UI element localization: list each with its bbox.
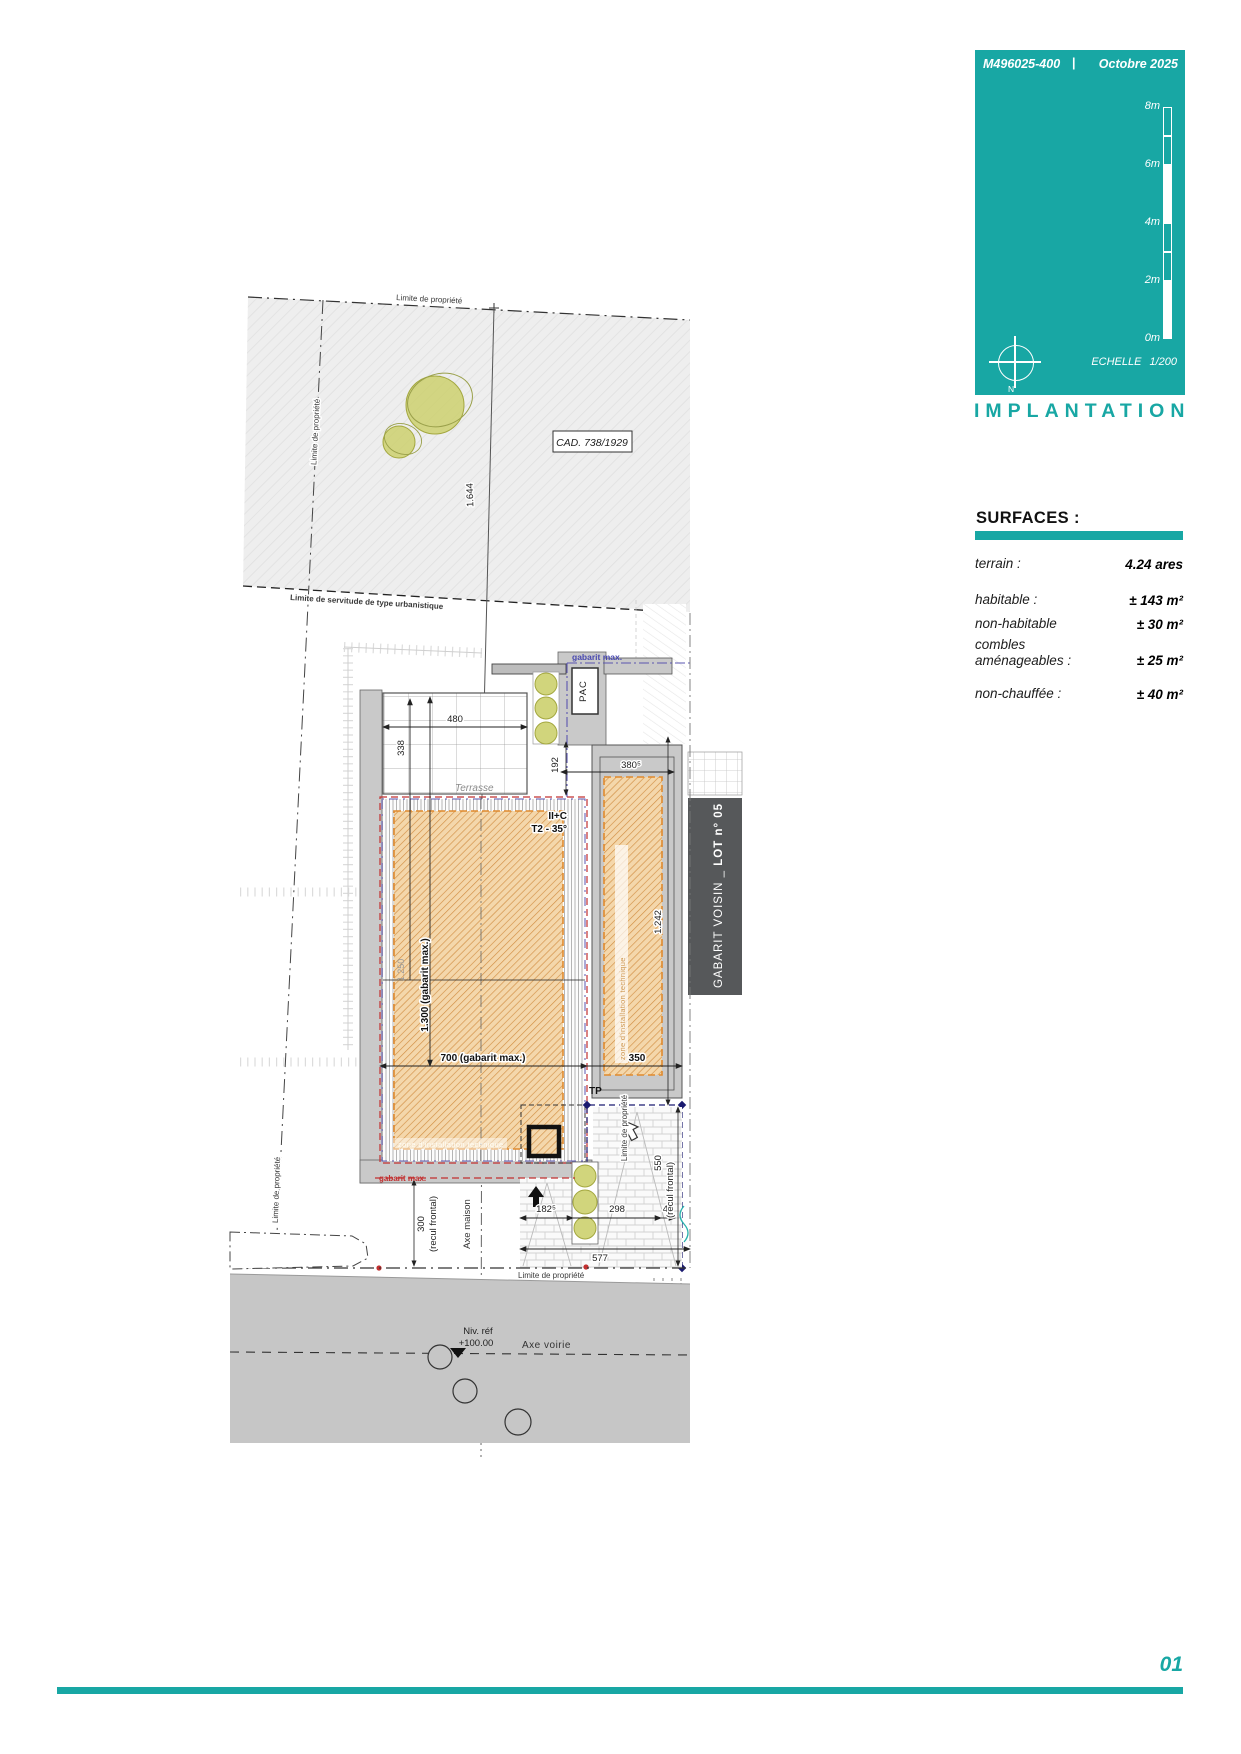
dim-1644: 1.644 xyxy=(465,483,477,507)
label-niv-ref: Niv. réf xyxy=(463,1326,493,1337)
label-recul-frontal-550: (recul frontal) xyxy=(665,1162,676,1218)
scale-text: ECHELLE1/200 xyxy=(1061,356,1177,368)
project-date: Octobre 2025 xyxy=(1099,57,1178,71)
label-recul-frontal-300: (recul frontal) xyxy=(428,1196,439,1252)
surface-label: terrain : xyxy=(975,556,1021,572)
label-zone-technique-neighbour: zone d'installation technique xyxy=(618,957,627,1060)
surface-value: ± 25 m² xyxy=(1137,653,1183,668)
scale-segment xyxy=(1163,107,1172,136)
surface-value: ± 143 m² xyxy=(1129,593,1183,608)
surface-row-combles: combles aménageables : ± 25 m² xyxy=(975,637,1183,668)
surface-row-non-habitable: non-habitable ± 30 m² xyxy=(975,616,1183,632)
dim-700: 700 (gabarit max.) xyxy=(440,1053,525,1064)
label-gabarit-max-red: gabarit max. xyxy=(379,1174,426,1183)
surfaces-heading-rule xyxy=(975,531,1183,540)
label-gabarit-max-blue: gabarit max. xyxy=(572,652,622,662)
label-axe-voirie: Axe voirie xyxy=(522,1340,571,1351)
manhole xyxy=(453,1379,477,1403)
page-title: IMPLANTATION xyxy=(974,400,1184,423)
scale-segment xyxy=(1163,165,1172,194)
label-limite-left-lower: Limite de propriété xyxy=(271,1156,282,1223)
label-axe-maison: Axe maison xyxy=(462,1199,473,1249)
scale-tick-6m: 6m xyxy=(1124,158,1160,170)
scale-segment xyxy=(1163,281,1172,310)
echelle-value: 1/200 xyxy=(1149,356,1177,368)
label-tp: TP xyxy=(589,1086,602,1097)
scale-tick-8m: 8m xyxy=(1124,100,1160,112)
label-zone-technique-house: zone d'installation technique xyxy=(398,1140,504,1149)
label-lot-number: LOT n° 05 xyxy=(713,803,725,866)
dim-182-5: 182⁵ xyxy=(536,1204,556,1215)
dim-577: 577 xyxy=(592,1253,608,1264)
surface-value: ± 30 m² xyxy=(1137,617,1183,632)
dim-380-5: 380⁵ xyxy=(621,760,641,771)
label-toiture: T2 - 35° xyxy=(531,824,567,835)
surface-value: ± 40 m² xyxy=(1137,687,1183,702)
compass-horizontal-line xyxy=(989,361,1041,363)
planting-strip-upper xyxy=(533,672,559,744)
north-compass-icon xyxy=(998,345,1034,381)
surface-value: 4.24 ares xyxy=(1125,557,1183,572)
surface-row-non-chauffee: non-chauffée : ± 40 m² xyxy=(975,686,1183,702)
dim-338: 338 xyxy=(396,740,407,756)
scale-tick-4m: 4m xyxy=(1124,216,1160,228)
label-gabarit-voisin-part1: GABARIT VOISIN _ xyxy=(713,866,725,988)
neighbour-building xyxy=(592,745,682,1098)
chimney-square xyxy=(529,1127,559,1156)
dim-298: 298 xyxy=(609,1204,625,1215)
footer-rule xyxy=(57,1687,1183,1694)
scale-segment xyxy=(1163,194,1172,223)
scale-segment xyxy=(1163,136,1172,165)
dim-350: 350 xyxy=(629,1053,646,1064)
label-limite-bottom: Limite de propriété xyxy=(518,1271,585,1280)
label-niv-value: +100.00 xyxy=(459,1338,494,1349)
surface-label: non-chauffée : xyxy=(975,686,1061,702)
label-gabarit-voisin: GABARIT VOISIN _ LOT n° 05 xyxy=(713,803,725,988)
manhole xyxy=(428,1345,452,1369)
dim-1300: 1.300 (gabarit max.) xyxy=(420,938,431,1031)
page-number: 01 xyxy=(1120,1653,1183,1677)
north-label: N xyxy=(1008,384,1014,394)
project-reference: M496025-400 xyxy=(983,57,1060,71)
surface-row-habitable: habitable : ± 143 m² xyxy=(975,592,1183,608)
manhole xyxy=(505,1409,531,1435)
surface-label: non-habitable xyxy=(975,616,1057,632)
road-notch xyxy=(230,1232,368,1269)
dim-480: 480 xyxy=(447,714,463,725)
label-niveaux: II+C xyxy=(548,811,567,822)
label-terrasse: Terrasse xyxy=(455,783,494,794)
echelle-label: ECHELLE xyxy=(1091,356,1141,368)
scale-tick-2m: 2m xyxy=(1124,274,1160,286)
dim-550: 550 xyxy=(653,1155,664,1171)
scale-segment xyxy=(1163,252,1172,281)
reference-separator: | xyxy=(1072,56,1076,70)
tile-patch xyxy=(688,752,742,795)
surface-label: habitable : xyxy=(975,592,1037,608)
surface-row-terrain: terrain : 4.24 ares xyxy=(975,556,1183,572)
scale-bar xyxy=(1163,107,1172,339)
label-limite-top: Limite de propriété xyxy=(396,293,463,305)
label-pac: PAC xyxy=(578,680,589,702)
boundary-point xyxy=(583,1264,588,1269)
dim-192: 192 xyxy=(550,757,561,773)
surface-label: combles aménageables : xyxy=(975,637,1071,668)
dim-300: 300 xyxy=(416,1216,427,1232)
surfaces-heading: SURFACES : xyxy=(976,509,1080,528)
scale-segment xyxy=(1163,310,1172,339)
dim-1250: 1.250 xyxy=(396,959,406,982)
house-wall-left xyxy=(360,690,382,1183)
scale-tick-0m: 0m xyxy=(1124,332,1160,344)
scale-segment xyxy=(1163,223,1172,252)
title-block: M496025-400 | Octobre 2025 8m 6m 4m 2m 0… xyxy=(975,50,1185,395)
dim-1242: 1.242 xyxy=(653,910,664,934)
label-limite-right: Limite de propriété xyxy=(620,1094,629,1161)
label-cadastre: CAD. 738/1929 xyxy=(556,437,628,449)
